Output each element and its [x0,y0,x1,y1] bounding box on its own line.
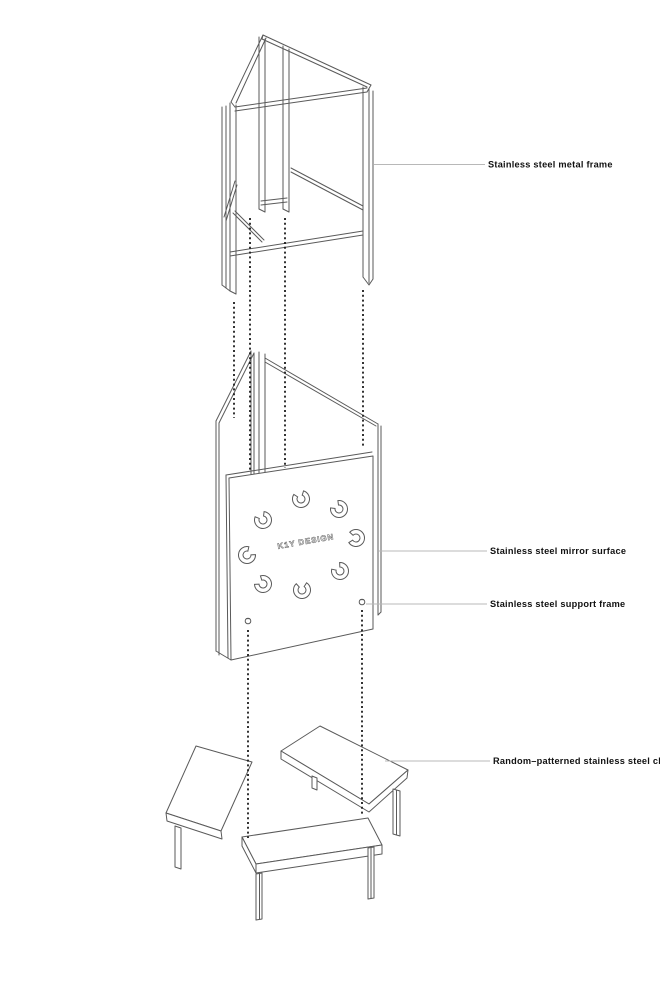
mirror-surface: K1Y DESIGN [226,452,373,660]
annotation-support-frame: Stainless steel support frame [366,599,625,609]
exploded-view-diagram: K1Y DESIGN [0,0,660,1000]
chair-left [166,746,252,869]
metal-frame [222,35,373,294]
annotation-label: Random–patterned stainless steel chair [493,756,660,766]
screw-icon [245,618,251,624]
chair-back [281,726,408,836]
annotation-label: Stainless steel metal frame [488,160,613,170]
annotation-mirror-surface: Stainless steel mirror surface [379,546,626,556]
annotation-label: Stainless steel support frame [490,599,625,609]
diagram-canvas: K1Y DESIGN [0,0,660,1000]
annotation-chair: Random–patterned stainless steel chair [385,756,660,766]
chair-front [242,818,382,920]
annotation-metal-frame: Stainless steel metal frame [374,160,613,170]
screw-icon [359,599,365,605]
annotation-label: Stainless steel mirror surface [490,546,626,556]
